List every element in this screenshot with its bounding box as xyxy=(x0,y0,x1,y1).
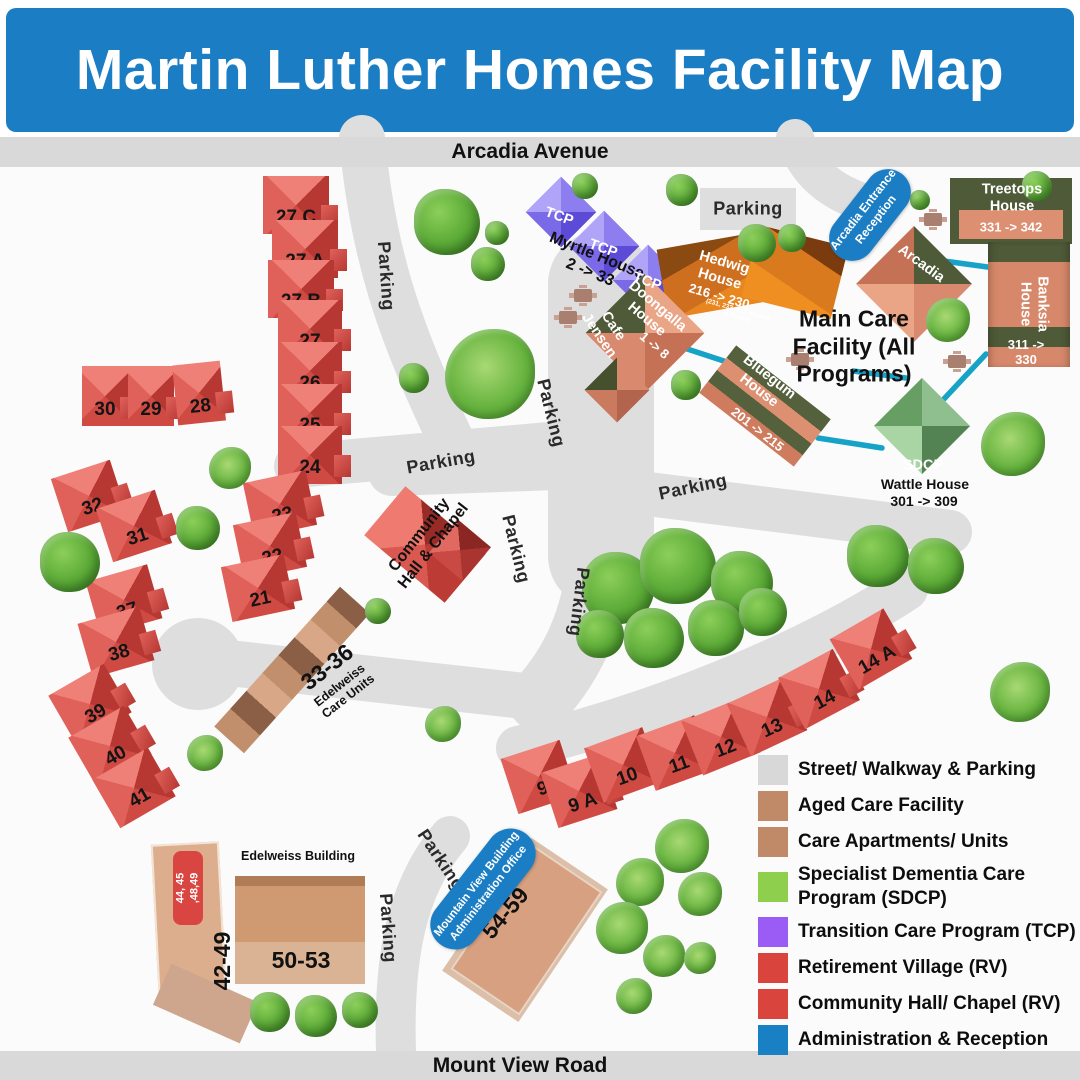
legend-item-community-hall: Community Hall/ Chapel (RV) xyxy=(758,989,1080,1019)
legend-label-tcp: Transition Care Program (TCP) xyxy=(798,920,1076,944)
legend-label-admin: Administration & Reception xyxy=(798,1028,1048,1052)
picnic-table-icon xyxy=(574,289,592,302)
tree xyxy=(910,190,930,210)
tree xyxy=(643,935,685,977)
picnic-table-icon xyxy=(924,213,942,226)
tree xyxy=(908,538,964,594)
street-mount-view-road-label: Mount View Road xyxy=(433,1054,608,1078)
tree xyxy=(926,298,970,342)
rv-unit-29: 29 xyxy=(128,366,174,426)
legend-label-care-apartments: Care Apartments/ Units xyxy=(798,830,1008,854)
legend-item-sdcp: Specialist Dementia Care Program (SDCP) xyxy=(758,863,1080,911)
tree xyxy=(176,506,220,550)
tree xyxy=(671,370,701,400)
parking-label: Parking xyxy=(713,199,783,220)
tree xyxy=(596,902,648,954)
tree xyxy=(295,995,337,1037)
edelweiss-range2-label: 50-53 xyxy=(272,947,331,973)
building-edelweiss-horizontal xyxy=(235,876,365,944)
street-arcadia-avenue-label: Arcadia Avenue xyxy=(451,140,608,164)
tree xyxy=(471,247,505,281)
legend-swatch-street xyxy=(758,755,788,785)
tree xyxy=(981,412,1045,476)
legend-label-sdcp: Specialist Dementia Care Program (SDCP) xyxy=(798,863,1025,911)
wattle-house-label: Wattle House xyxy=(881,476,969,492)
tree xyxy=(640,528,716,604)
picnic-table-icon xyxy=(948,355,966,368)
tree xyxy=(616,858,664,906)
legend-item-rv: Retirement Village (RV) xyxy=(758,953,1080,983)
tree xyxy=(572,173,598,199)
picnic-table-icon xyxy=(559,311,577,324)
legend-swatch-sdcp xyxy=(758,872,788,902)
tree xyxy=(414,189,480,255)
tree xyxy=(342,992,378,1028)
edelweiss-building-label: Edelweiss Building xyxy=(241,849,355,863)
legend-swatch-community-hall xyxy=(758,989,788,1019)
legend-label-rv: Retirement Village (RV) xyxy=(798,956,1007,980)
legend-item-aged-care: Aged Care Facility xyxy=(758,791,1080,821)
tree xyxy=(485,221,509,245)
legend-item-care-apartments: Care Apartments/ Units xyxy=(758,827,1080,857)
street-arcadia-avenue: Arcadia Avenue xyxy=(0,137,1080,167)
connector-path xyxy=(818,438,882,448)
tree xyxy=(616,978,652,1014)
tree xyxy=(425,706,461,742)
tree xyxy=(250,992,290,1032)
tree xyxy=(990,662,1050,722)
rv-unit-number: 21 xyxy=(248,587,274,618)
tree xyxy=(666,174,698,206)
rv-unit-number: 29 xyxy=(140,399,161,426)
tree xyxy=(399,363,429,393)
cul-de-sac xyxy=(152,618,244,710)
legend-swatch-rv xyxy=(758,953,788,983)
tree xyxy=(365,598,391,624)
legend-swatch-aged-care xyxy=(758,791,788,821)
legend-item-tcp: Transition Care Program (TCP) xyxy=(758,917,1080,947)
tree xyxy=(624,608,684,668)
treetops-range-label: 331 -> 342 xyxy=(980,221,1043,236)
rv-unit-30: 30 xyxy=(82,366,128,426)
legend-item-admin: Administration & Reception xyxy=(758,1025,1080,1055)
tree xyxy=(209,447,251,489)
tree xyxy=(445,329,535,419)
sdcp-label: SDCP xyxy=(903,458,943,475)
tree xyxy=(688,600,744,656)
tree xyxy=(847,525,909,587)
tree xyxy=(739,588,787,636)
rv-unit-28: 28 xyxy=(172,361,226,426)
tree xyxy=(738,224,776,262)
banksia-range-label: 311 -> 330 xyxy=(999,338,1053,368)
legend-label-street: Street/ Walkway & Parking xyxy=(798,758,1036,782)
rv-unit-number: 38 xyxy=(106,640,134,672)
legend-swatch-admin xyxy=(758,1025,788,1055)
legend-label-aged-care: Aged Care Facility xyxy=(798,794,964,818)
tree xyxy=(187,735,223,771)
map-legend: Street/ Walkway & ParkingAged Care Facil… xyxy=(758,755,1080,1061)
legend-swatch-tcp xyxy=(758,917,788,947)
legend-label-community-hall: Community Hall/ Chapel (RV) xyxy=(798,992,1061,1016)
tree xyxy=(678,872,722,916)
road-segment xyxy=(362,138,452,442)
rv-unit-number: 30 xyxy=(94,399,115,426)
rv-unit-number: 28 xyxy=(189,395,213,424)
legend-item-street: Street/ Walkway & Parking xyxy=(758,755,1080,785)
wattle-range-label: 301 -> 309 xyxy=(890,493,957,509)
banksia-house-label: Banksia House xyxy=(1017,276,1050,332)
tree xyxy=(778,224,806,252)
edelweiss-range-label: 42-49 xyxy=(209,932,235,991)
main-care-facility-label: Main Care Facility (All Programs) xyxy=(793,306,916,389)
tree xyxy=(40,532,100,592)
treetops-house-label: Treetops House xyxy=(982,181,1042,214)
tree xyxy=(655,819,709,873)
edelweiss-rooms-label: 44, 45 ,48,49 xyxy=(174,873,203,904)
tree xyxy=(684,942,716,974)
legend-swatch-care-apartments xyxy=(758,827,788,857)
